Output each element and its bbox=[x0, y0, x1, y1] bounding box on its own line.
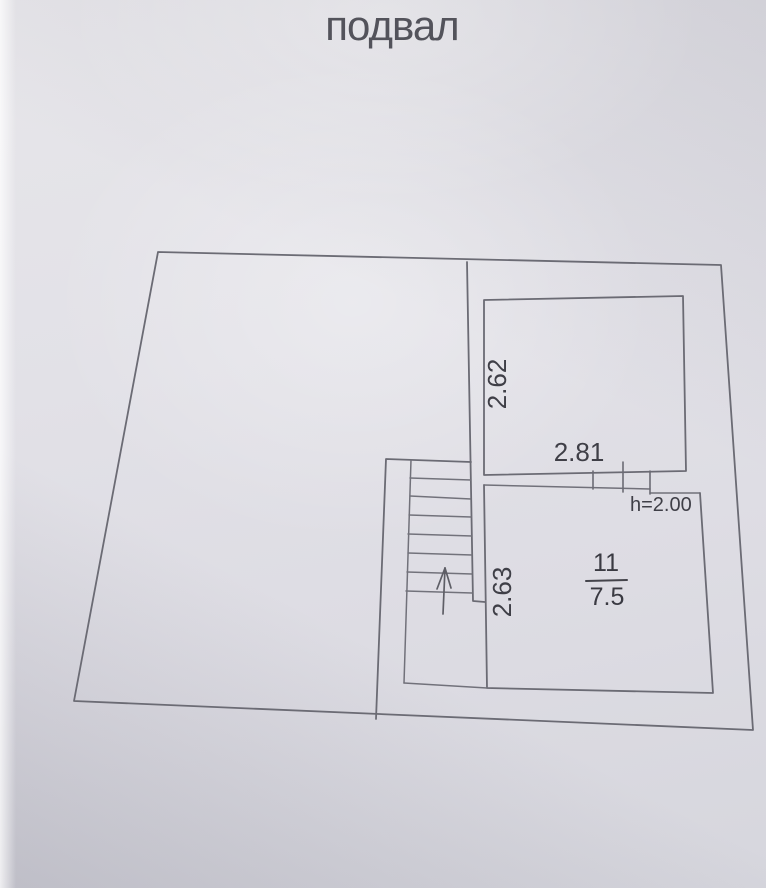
divider-wall bbox=[467, 262, 485, 602]
outer-boundary-wall bbox=[74, 252, 753, 730]
stair-bottom-wall bbox=[404, 683, 487, 688]
stair-step bbox=[410, 478, 471, 480]
room11-top-wall-left bbox=[484, 485, 650, 489]
dimension-upper-room-width: 2.81 bbox=[554, 437, 605, 467]
stair-step bbox=[406, 591, 472, 593]
room-area: 7.5 bbox=[590, 583, 625, 611]
fraction-bar bbox=[586, 580, 627, 581]
stair-step bbox=[408, 534, 472, 536]
up-arrow-icon bbox=[437, 568, 451, 614]
stair-step bbox=[410, 496, 471, 499]
dimension-room11-depth: 2.63 bbox=[487, 567, 517, 618]
outer-walls bbox=[74, 252, 753, 730]
basement-floor-plan: подвал bbox=[0, 0, 766, 888]
stair-step bbox=[407, 572, 472, 574]
door-height-note: h=2.00 bbox=[630, 494, 692, 516]
room11-label: 11 7.5 bbox=[586, 549, 627, 611]
divider-wall-line bbox=[467, 262, 485, 602]
dimension-upper-room-height: 2.62 bbox=[482, 359, 512, 410]
arrow-barb-right bbox=[445, 568, 451, 588]
page-title: подвал bbox=[325, 2, 458, 49]
stair-step bbox=[409, 515, 471, 517]
floor-plan-photo: подвал bbox=[0, 0, 766, 888]
arrow-shaft bbox=[443, 568, 445, 614]
stair-step bbox=[408, 553, 472, 555]
room-number: 11 bbox=[593, 549, 619, 577]
